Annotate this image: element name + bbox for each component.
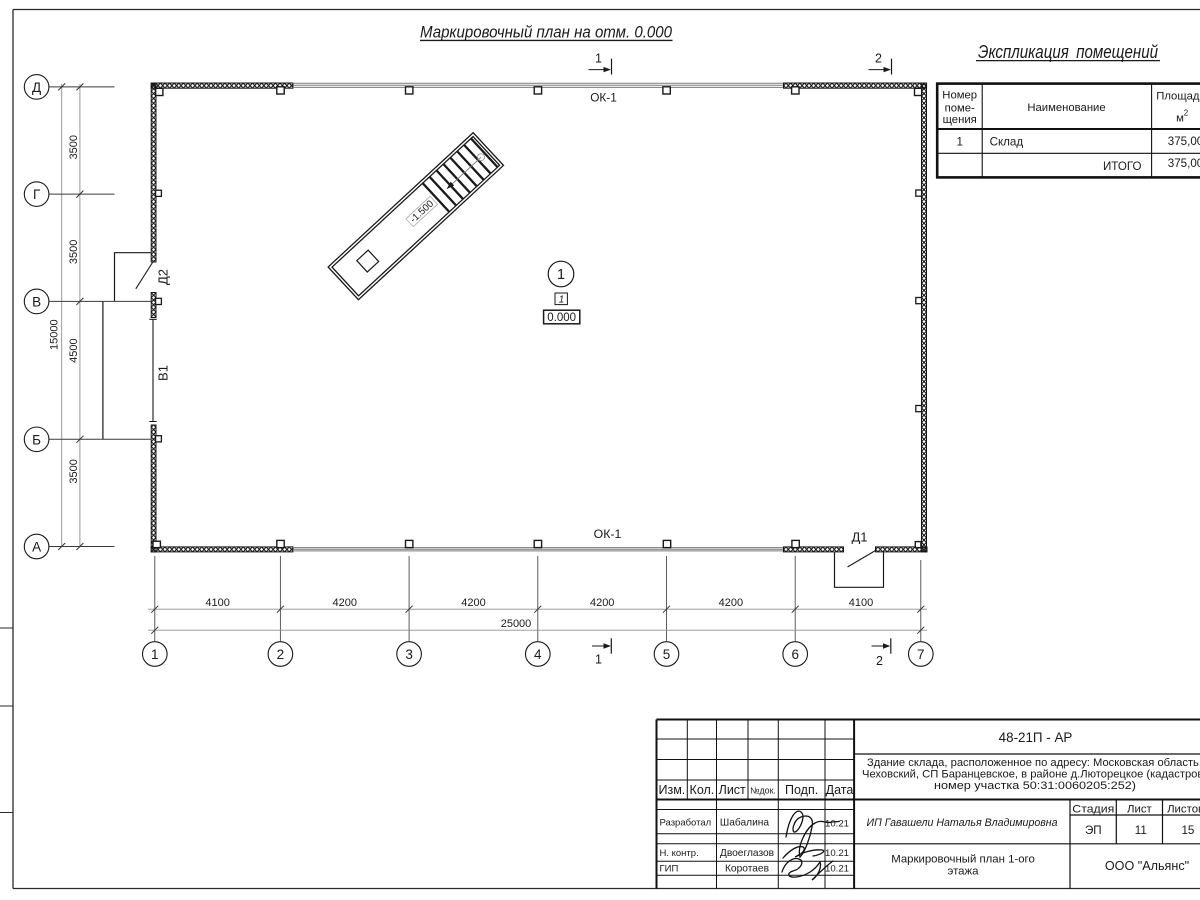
svg-text:Маркировочный план 1-ого: Маркировочный план 1-ого (891, 854, 1035, 866)
svg-text:Стадия: Стадия (1072, 803, 1114, 815)
svg-text:3500: 3500 (68, 135, 80, 159)
svg-text:Д: Д (32, 80, 41, 95)
svg-text:4200: 4200 (333, 597, 357, 609)
svg-text:3500: 3500 (68, 240, 80, 264)
svg-text:10.21: 10.21 (825, 819, 849, 830)
svg-text:Шабалина: Шабалина (720, 817, 770, 829)
svg-text:ЭП: ЭП (1085, 824, 1102, 837)
svg-text:4200: 4200 (461, 597, 485, 609)
svg-text:ИП Гавашели Наталья Владимиров: ИП Гавашели Наталья Владимировна (867, 817, 1058, 829)
svg-text:ИТОГО: ИТОГО (1103, 160, 1142, 173)
svg-text:2: 2 (277, 647, 285, 662)
svg-text:В1: В1 (156, 365, 171, 381)
svg-text:4: 4 (534, 647, 542, 662)
svg-text:Б: Б (32, 432, 41, 447)
svg-text:Разработал: Разработал (660, 818, 712, 829)
svg-text:0.000: 0.000 (547, 312, 576, 324)
svg-text:Здание склада, расположенное п: Здание склада, расположенное по адресу: … (867, 757, 1200, 769)
svg-text:Дата: Дата (826, 783, 854, 797)
svg-text:4200: 4200 (719, 597, 743, 609)
svg-text:3500: 3500 (68, 459, 80, 483)
svg-text:Изм.: Изм. (659, 783, 686, 797)
svg-text:4200: 4200 (590, 597, 614, 609)
svg-text:Склад: Склад (990, 135, 1024, 148)
svg-text:6: 6 (791, 647, 799, 662)
svg-text:4100: 4100 (205, 597, 229, 609)
svg-text:15000: 15000 (49, 319, 61, 350)
svg-text:Номер: Номер (942, 89, 977, 101)
svg-text:2: 2 (1184, 108, 1189, 117)
svg-text:м: м (1176, 113, 1184, 125)
svg-text:Подп.: Подп. (785, 783, 818, 797)
svg-text:1: 1 (151, 647, 159, 662)
svg-text:Коротаев: Коротаев (725, 864, 769, 875)
svg-text:Лист: Лист (1127, 803, 1153, 815)
svg-text:48-21П - АР: 48-21П - АР (999, 730, 1073, 745)
svg-text:1: 1 (956, 135, 962, 148)
svg-text:№док.: №док. (750, 785, 776, 795)
svg-text:Чеховский, СП Баранцевское, в: Чеховский, СП Баранцевское, в районе д.Л… (862, 768, 1200, 780)
svg-text:Г: Г (33, 187, 41, 202)
svg-text:4500: 4500 (68, 338, 80, 362)
svg-text:Наименование: Наименование (1027, 102, 1105, 114)
svg-text:ГИП: ГИП (660, 864, 679, 875)
svg-text:Лист: Лист (719, 783, 746, 797)
svg-text:номер участка 50:31:0060205:25: номер участка 50:31:0060205:252) (934, 780, 1136, 792)
svg-text:поме-: поме- (945, 102, 975, 114)
svg-text:Д1: Д1 (851, 530, 867, 545)
svg-text:375,00: 375,00 (1168, 135, 1200, 148)
svg-text:Листов: Листов (1167, 803, 1200, 815)
svg-text:А: А (32, 540, 41, 555)
svg-text:щения: щения (943, 114, 977, 126)
svg-text:3: 3 (405, 647, 413, 662)
svg-text:Кол.: Кол. (690, 783, 715, 797)
svg-text:2: 2 (876, 654, 883, 668)
svg-text:Д2: Д2 (156, 269, 171, 285)
svg-text:Экспликация помещений: Экспликация помещений (978, 41, 1158, 62)
svg-text:5: 5 (663, 647, 671, 662)
svg-text:25000: 25000 (501, 618, 532, 630)
svg-text:ОК-1: ОК-1 (594, 527, 622, 541)
svg-text:В: В (32, 294, 41, 309)
svg-text:Н. контр.: Н. контр. (660, 848, 699, 859)
svg-text:этажа: этажа (948, 865, 980, 877)
svg-text:ООО "Альянс": ООО "Альянс" (1105, 859, 1189, 873)
svg-text:Площадь: Площадь (1156, 90, 1200, 102)
svg-text:1: 1 (595, 653, 602, 667)
svg-text:10.21: 10.21 (825, 848, 849, 859)
svg-text:4100: 4100 (849, 597, 873, 609)
svg-text:1: 1 (557, 267, 565, 283)
svg-text:Маркировочный план на отм. 0.0: Маркировочный план на отм. 0.000 (420, 23, 672, 42)
svg-text:7: 7 (917, 647, 925, 662)
svg-text:1: 1 (595, 52, 602, 66)
svg-text:1: 1 (559, 295, 565, 306)
svg-text:375,00: 375,00 (1168, 157, 1200, 170)
svg-text:Двоеглазов: Двоеглазов (720, 848, 774, 859)
svg-text:15: 15 (1181, 824, 1194, 837)
svg-text:ОК-1: ОК-1 (590, 91, 617, 105)
svg-text:2: 2 (875, 52, 882, 66)
svg-text:11: 11 (1135, 824, 1147, 837)
